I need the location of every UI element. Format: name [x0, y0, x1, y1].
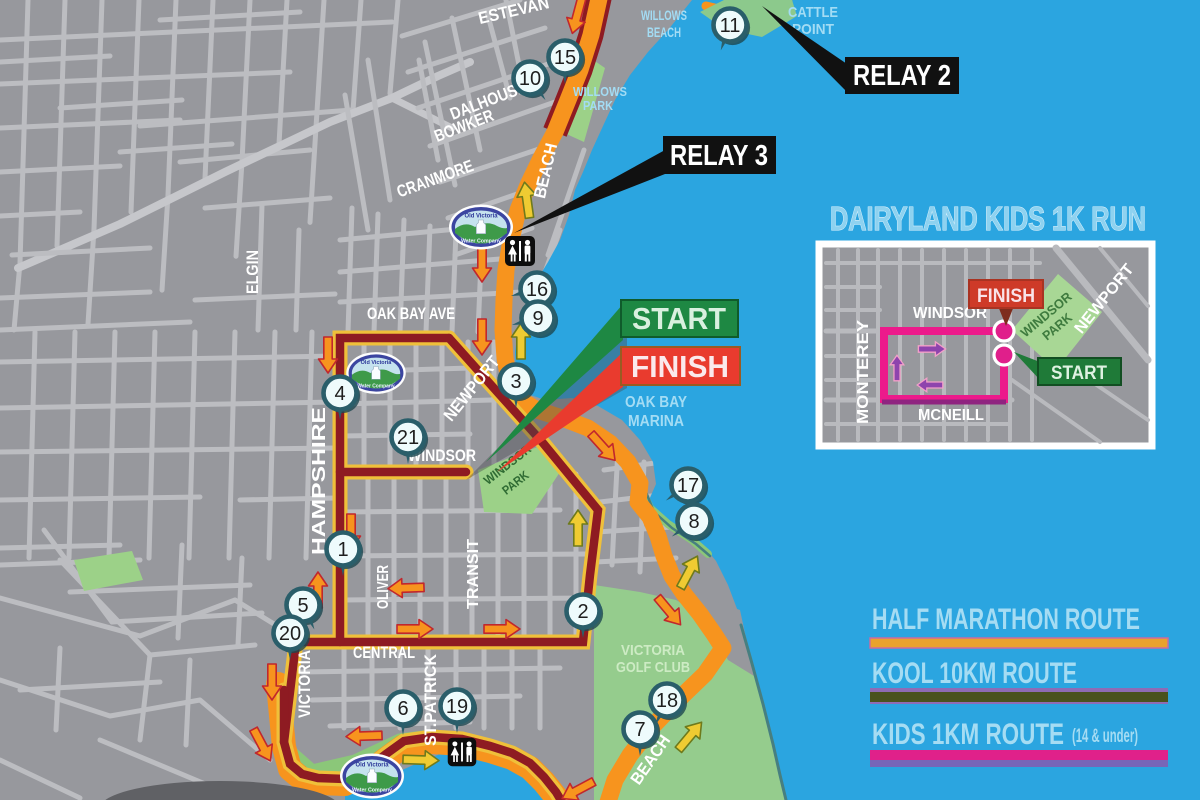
svg-text:9: 9 — [532, 308, 543, 330]
svg-text:START: START — [632, 301, 726, 336]
svg-text:ST.PATRICK: ST.PATRICK — [421, 653, 440, 746]
svg-text:RELAY 2: RELAY 2 — [853, 60, 951, 92]
svg-text:(14 & under): (14 & under) — [1072, 726, 1138, 747]
svg-text:3: 3 — [510, 371, 521, 393]
svg-text:7: 7 — [634, 719, 645, 741]
svg-text:BEACH: BEACH — [647, 25, 681, 40]
svg-text:OLIVER: OLIVER — [375, 565, 392, 609]
svg-text:2: 2 — [577, 601, 588, 623]
svg-text:GOLF CLUB: GOLF CLUB — [616, 659, 690, 676]
svg-text:RELAY 3: RELAY 3 — [670, 140, 768, 172]
svg-text:16: 16 — [526, 279, 548, 301]
svg-text:DAIRYLAND KIDS 1K RUN: DAIRYLAND KIDS 1K RUN — [830, 200, 1146, 237]
svg-text:VICTORIA: VICTORIA — [295, 650, 314, 718]
svg-text:6: 6 — [397, 698, 408, 720]
svg-text:CENTRAL: CENTRAL — [353, 644, 415, 662]
svg-text:18: 18 — [656, 690, 678, 712]
svg-text:8: 8 — [688, 511, 699, 533]
svg-text:FINISH: FINISH — [631, 349, 729, 384]
svg-text:WILLOWS: WILLOWS — [641, 8, 687, 23]
svg-text:MONTEREY: MONTEREY — [855, 320, 872, 424]
svg-text:5: 5 — [297, 595, 308, 617]
svg-text:OAK BAY AVE: OAK BAY AVE — [367, 305, 455, 323]
svg-text:20: 20 — [279, 623, 301, 645]
svg-text:21: 21 — [397, 427, 419, 449]
svg-text:WILLOWS: WILLOWS — [573, 85, 627, 99]
svg-text:4: 4 — [334, 383, 345, 405]
svg-text:15: 15 — [554, 47, 576, 69]
svg-text:CATTLE: CATTLE — [788, 4, 838, 21]
svg-text:FINISH: FINISH — [977, 286, 1035, 307]
svg-text:10: 10 — [519, 68, 541, 90]
svg-text:17: 17 — [677, 475, 699, 497]
svg-text:KIDS 1KM ROUTE: KIDS 1KM ROUTE — [872, 718, 1064, 751]
svg-text:MCNEILL: MCNEILL — [918, 407, 984, 424]
svg-text:HAMPSHIRE: HAMPSHIRE — [309, 407, 329, 555]
svg-text:VICTORIA: VICTORIA — [621, 642, 685, 659]
svg-text:OAK BAY: OAK BAY — [625, 394, 687, 411]
svg-text:19: 19 — [446, 696, 468, 718]
svg-text:11: 11 — [720, 15, 741, 37]
svg-text:1: 1 — [337, 539, 348, 561]
svg-text:ELGIN: ELGIN — [243, 250, 262, 294]
svg-text:HALF MARATHON ROUTE: HALF MARATHON ROUTE — [872, 603, 1140, 636]
svg-text:MARINA: MARINA — [628, 413, 684, 430]
svg-text:KOOL 10KM ROUTE: KOOL 10KM ROUTE — [872, 657, 1077, 690]
svg-text:START: START — [1051, 363, 1107, 384]
svg-text:TRANSIT: TRANSIT — [465, 539, 482, 609]
svg-text:PARK: PARK — [583, 99, 613, 113]
